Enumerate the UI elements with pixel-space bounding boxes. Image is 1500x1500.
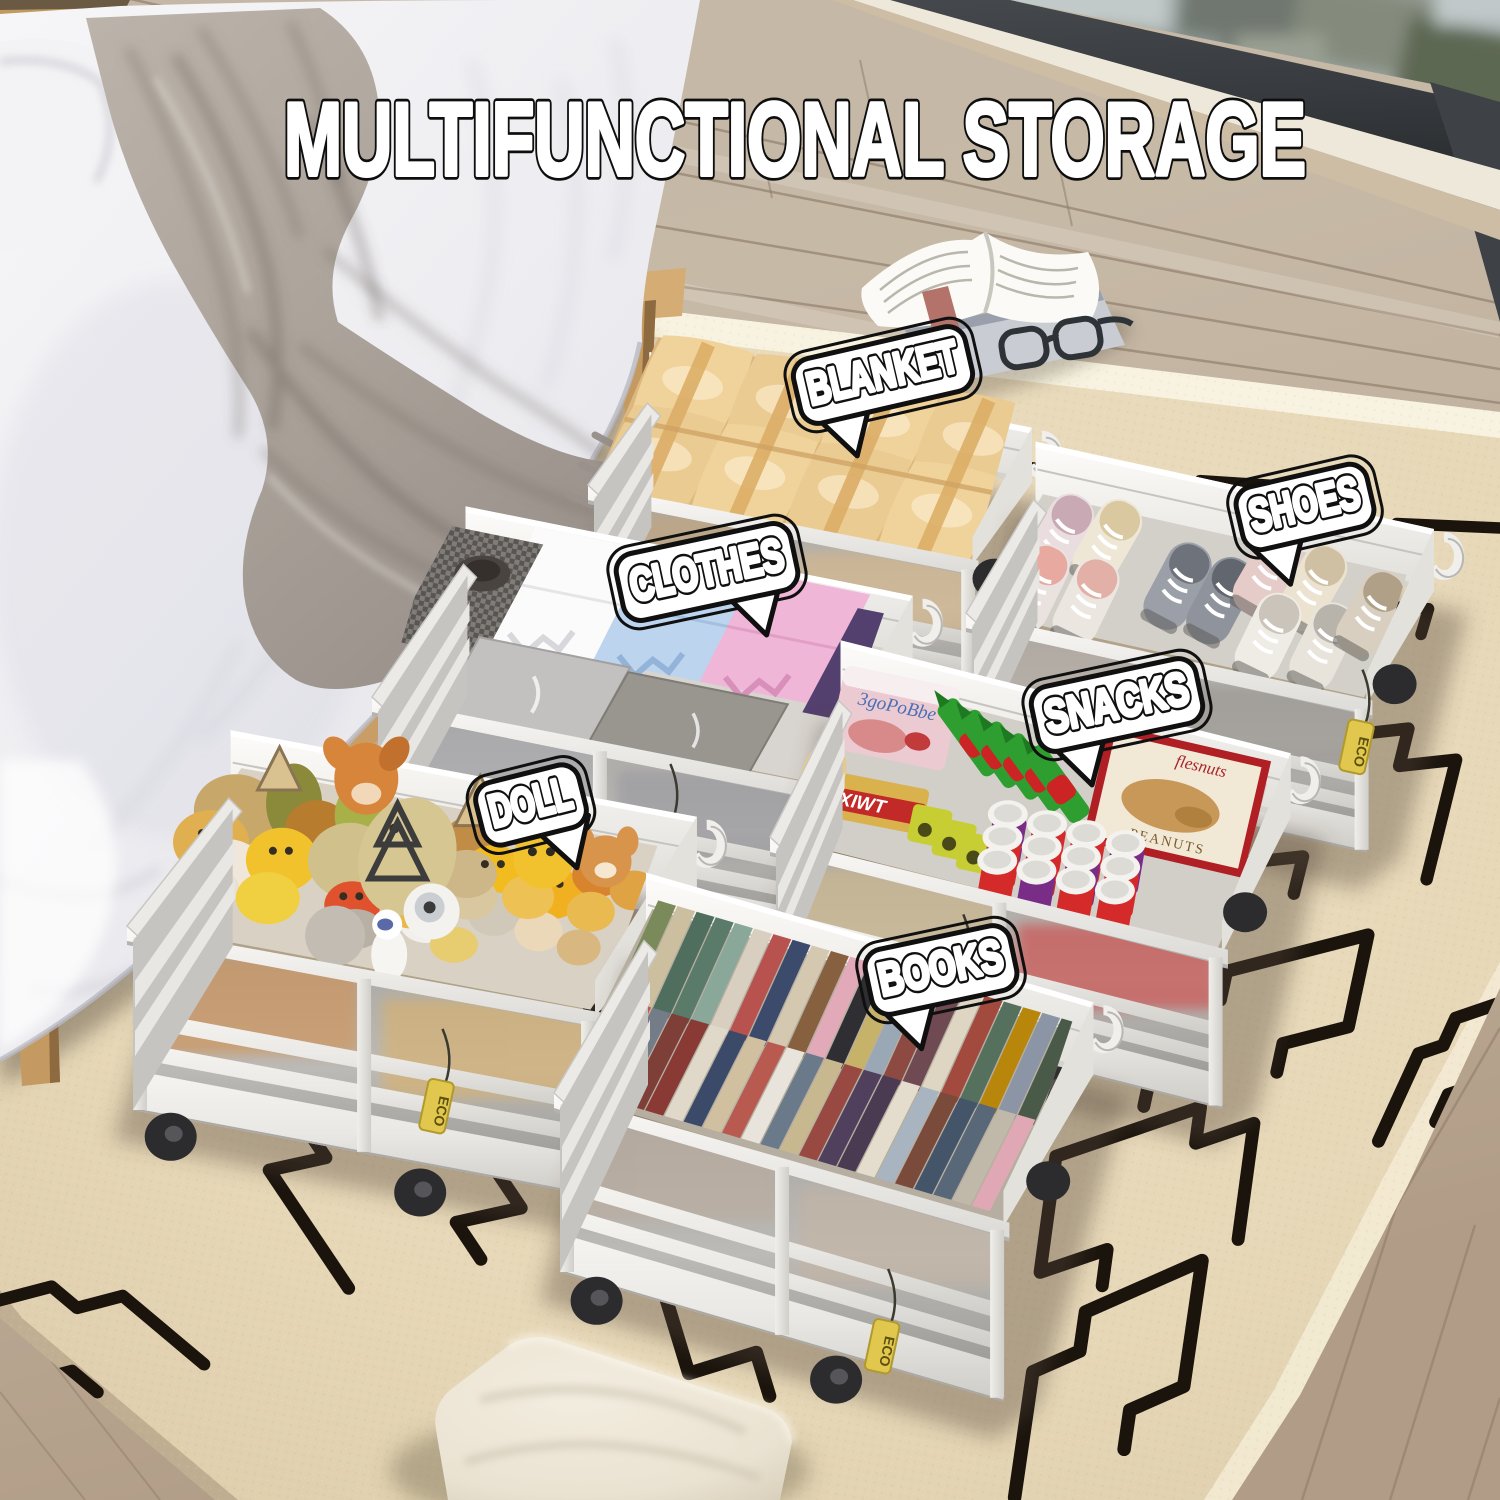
svg-text:MULTIFUNCTIONAL STORAGE: MULTIFUNCTIONAL STORAGE: [284, 82, 1306, 198]
